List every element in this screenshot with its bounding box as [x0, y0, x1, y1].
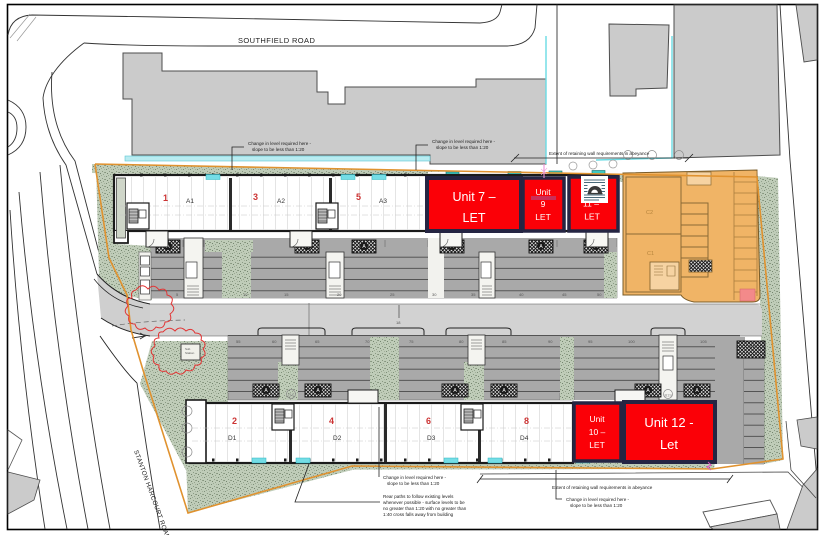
svg-text:90: 90	[548, 339, 553, 344]
svg-text:D2: D2	[333, 435, 342, 442]
svg-text:A2: A2	[277, 198, 285, 205]
svg-text:Change in level required here: Change in level required here -	[383, 475, 447, 480]
svg-text:LET: LET	[584, 212, 600, 222]
svg-text:5: 5	[356, 192, 361, 202]
svg-text:60: 60	[272, 339, 277, 344]
svg-text:1: 1	[163, 193, 168, 203]
svg-text:100: 100	[628, 339, 635, 344]
svg-text:Unit 7 –: Unit 7 –	[452, 190, 495, 204]
svg-text:6: 6	[426, 416, 431, 426]
svg-text:10 –: 10 –	[589, 427, 606, 437]
svg-text:slope to be less than 1:20: slope to be less than 1:20	[570, 503, 623, 508]
svg-text:B4: B4	[288, 393, 294, 398]
svg-text:8: 8	[524, 416, 529, 426]
svg-text:45: 45	[562, 292, 567, 297]
svg-text:Unit 12 -: Unit 12 -	[644, 415, 693, 430]
svg-text:35: 35	[471, 292, 476, 297]
svg-text:20: 20	[337, 292, 342, 297]
svg-text:A3: A3	[379, 198, 387, 205]
svg-text:slope to be less than 1:20: slope to be less than 1:20	[436, 145, 489, 150]
svg-text:70: 70	[365, 339, 370, 344]
svg-text:D1: D1	[228, 435, 237, 442]
svg-text:3: 3	[253, 192, 258, 202]
svg-text:Change in level required here: Change in level required here -	[566, 497, 630, 502]
svg-text:Let: Let	[660, 437, 678, 452]
svg-text:9: 9	[541, 199, 546, 209]
svg-text:no greater than 1:20 with no g: no greater than 1:20 with no greater tha…	[383, 506, 467, 511]
svg-text:40: 40	[519, 292, 524, 297]
svg-text:LET: LET	[535, 212, 551, 222]
svg-text:C1: C1	[647, 251, 654, 257]
svg-text:55: 55	[236, 339, 241, 344]
svg-text:105: 105	[700, 339, 707, 344]
svg-text:65: 65	[315, 339, 320, 344]
svg-text:110: 110	[749, 343, 756, 348]
svg-text:80: 80	[459, 339, 464, 344]
svg-text:Extent of retaining wall requi: Extent of retaining wall requirements in…	[549, 151, 650, 156]
svg-text:25: 25	[390, 292, 395, 297]
svg-text:A1: A1	[186, 198, 194, 205]
svg-text:30: 30	[432, 292, 437, 297]
svg-text:Unit: Unit	[535, 187, 551, 197]
svg-text:Station: Station	[185, 351, 195, 355]
svg-text:18: 18	[396, 320, 401, 325]
svg-text:Change in level required here: Change in level required here -	[248, 141, 312, 146]
svg-text:Rear paths to follow existing: Rear paths to follow existing levels	[383, 494, 454, 499]
svg-text:D3: D3	[427, 435, 436, 442]
svg-text:LET: LET	[463, 211, 486, 225]
svg-text:85: 85	[502, 339, 507, 344]
svg-text:D4: D4	[520, 435, 529, 442]
svg-text:50: 50	[597, 292, 602, 297]
svg-text:C2: C2	[646, 210, 653, 216]
svg-text:15: 15	[284, 292, 289, 297]
svg-text:10: 10	[243, 292, 248, 297]
svg-text:B19: B19	[664, 393, 672, 398]
svg-text:slope to be less than 1:20: slope to be less than 1:20	[387, 481, 440, 486]
svg-text:4: 4	[329, 416, 334, 426]
svg-text:Change in level required here: Change in level required here -	[432, 139, 496, 144]
svg-text:Extent of retaining wall requi: Extent of retaining wall requirements in…	[552, 485, 653, 490]
svg-text:75: 75	[409, 339, 414, 344]
svg-text:whenever possible - surface le: whenever possible - surface levels to be	[383, 500, 465, 505]
svg-text:LET: LET	[589, 440, 605, 450]
svg-text:2: 2	[232, 416, 237, 426]
svg-text:1:40 cross falls away from bui: 1:40 cross falls away from building	[383, 512, 454, 517]
svg-text:SOUTHFIELD ROAD: SOUTHFIELD ROAD	[238, 36, 315, 45]
svg-text:slope to be less than 1:20: slope to be less than 1:20	[252, 147, 305, 152]
svg-text:95: 95	[588, 339, 593, 344]
svg-text:Unit: Unit	[589, 414, 605, 424]
